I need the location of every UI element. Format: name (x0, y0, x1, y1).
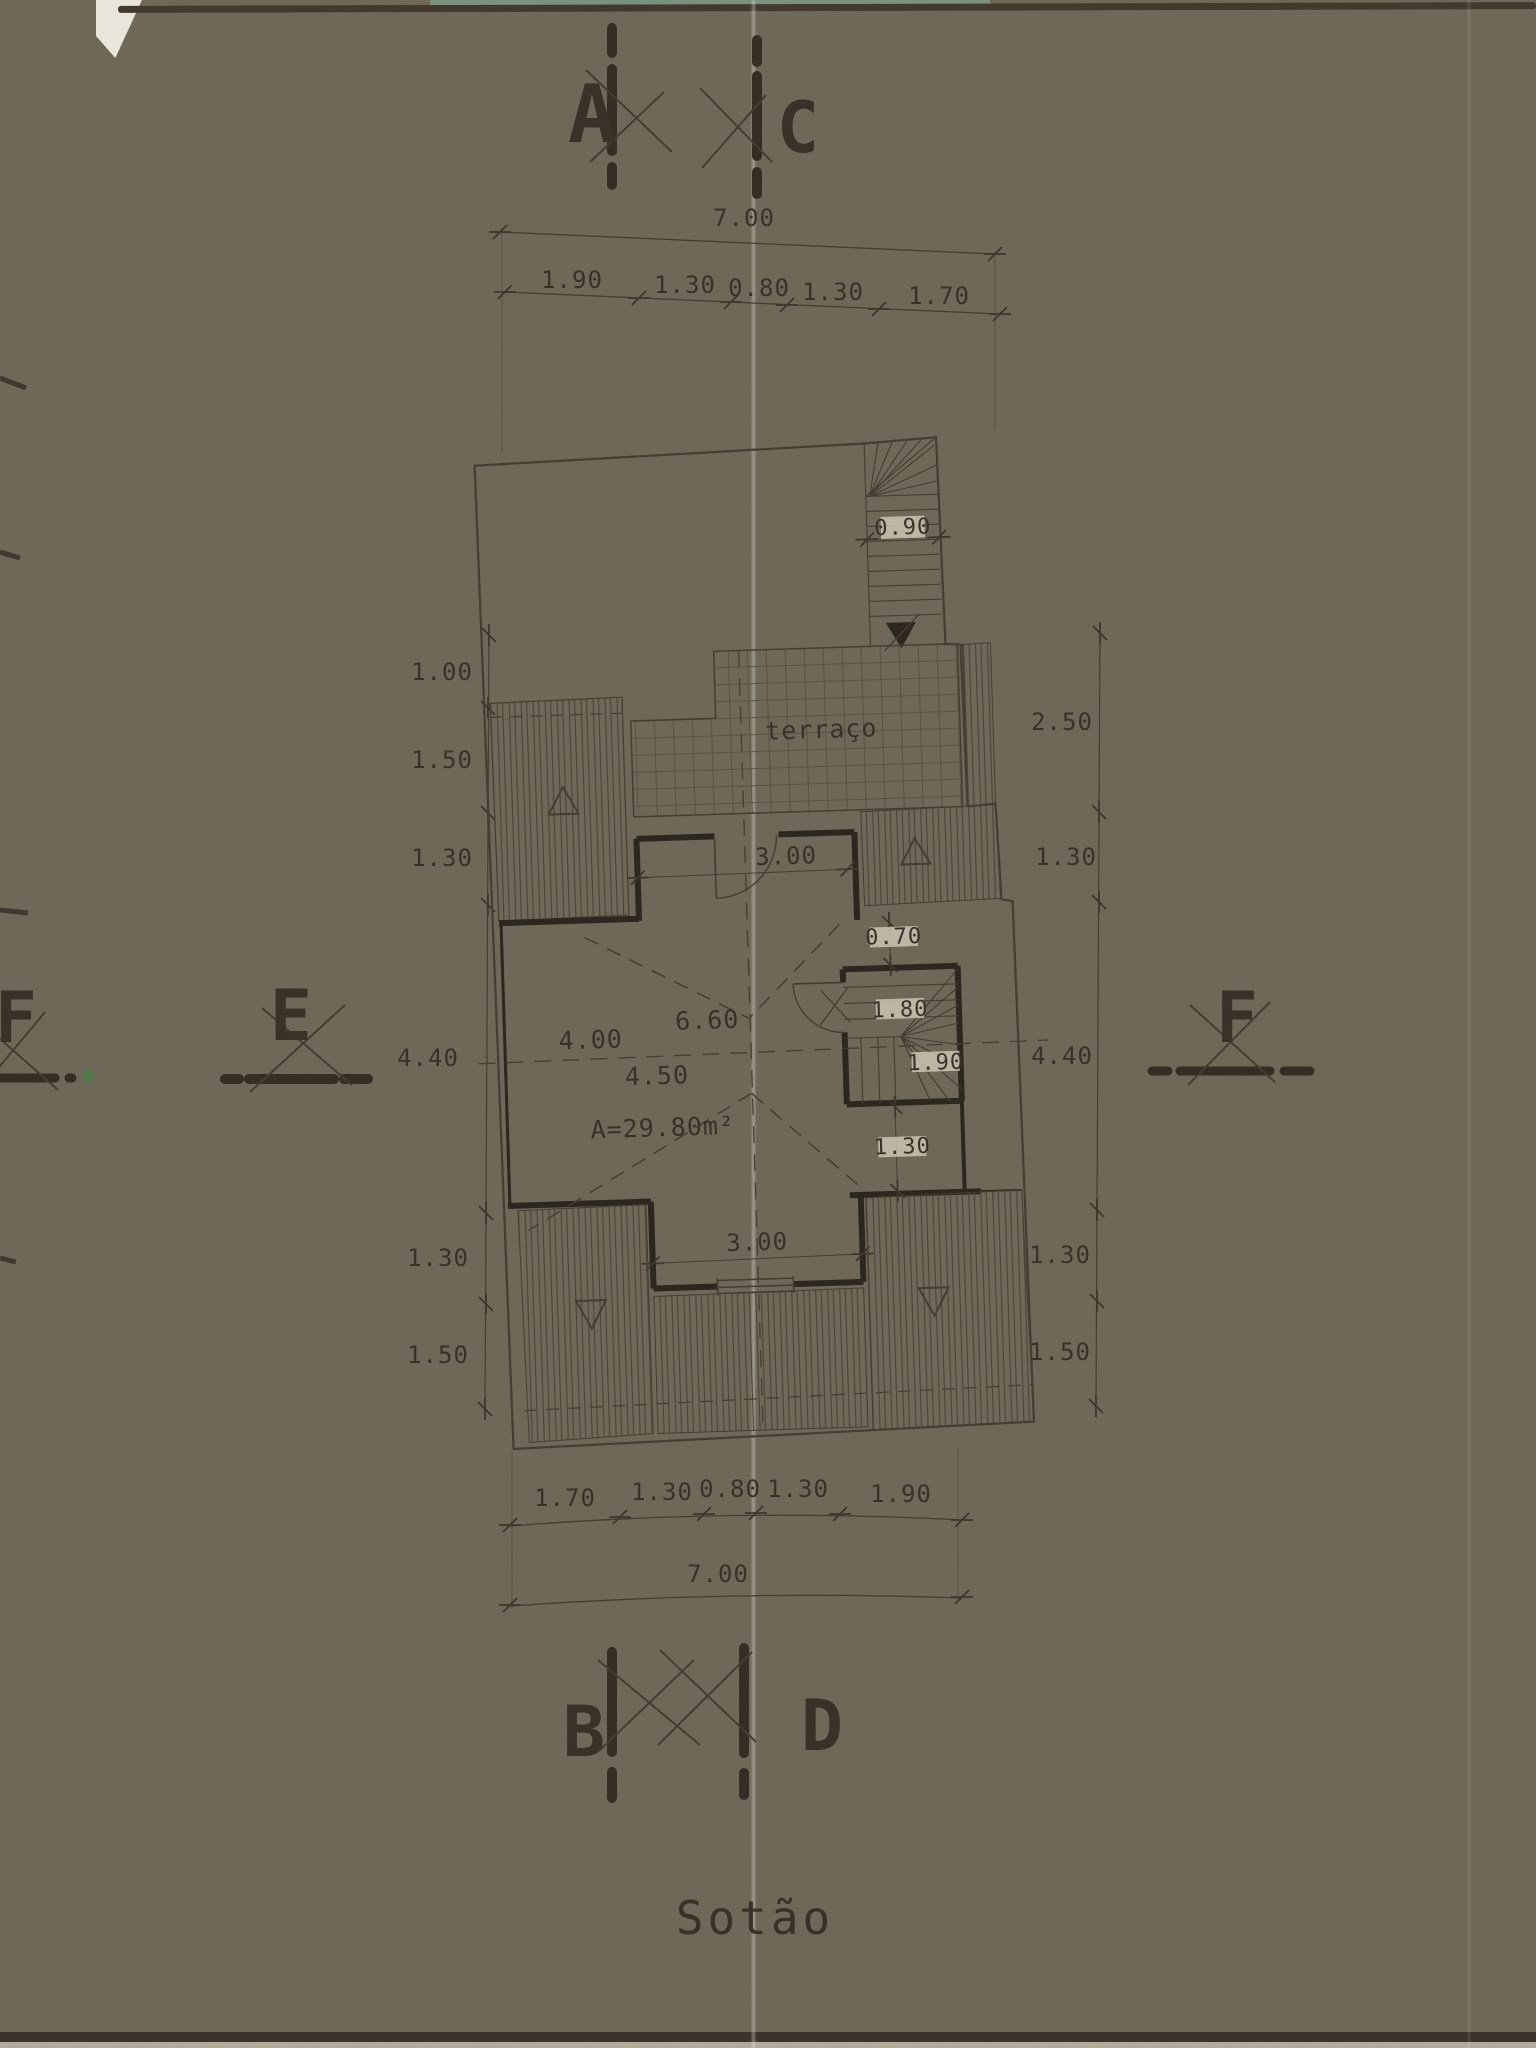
section-marker-b: B (563, 1652, 700, 1800)
dim-room-center: 4.50 (624, 1060, 689, 1091)
photographed-blueprint-page: A C B D E F F (0, 0, 1536, 2048)
marker-a-label: A (568, 68, 616, 161)
roof-hatch-upper-left (490, 697, 629, 921)
dim-top-seg-3: 0.80 (728, 274, 790, 302)
dim-bottom-seg-3: 0.80 (699, 1475, 761, 1503)
inner-stair: 1.80 1.90 (793, 969, 966, 1106)
dim-stair-b: 1.90 (907, 1050, 965, 1077)
dim-left-chain: 1.00 1.50 1.30 4.40 1.30 1.50 (397, 624, 496, 1420)
marker-f-right-label: F (1216, 977, 1258, 1059)
dim-top-seg-2: 1.30 (654, 271, 716, 299)
dim-bottom: 1.70 1.30 0.80 1.30 1.90 7.00 (499, 1448, 973, 1612)
section-marker-f-right: F (1152, 977, 1318, 1085)
section-marker-e: E (225, 975, 368, 1092)
terrace-label: terraço (765, 713, 878, 746)
room-area-label: A=29.80m² (590, 1111, 735, 1145)
marker-e-label: E (270, 975, 312, 1057)
dim-room-left: 4.00 (558, 1024, 623, 1055)
dim-right-3: 4.40 (1031, 1042, 1093, 1070)
adjacent-page-marks (0, 378, 28, 1262)
dim-left-1: 1.00 (411, 658, 473, 686)
dim-bottom-seg-2: 1.30 (631, 1478, 693, 1506)
marker-c-label: C (777, 87, 819, 169)
terrace: terraço (629, 644, 963, 817)
dim-right-1: 2.50 (1031, 708, 1093, 736)
dim-bottom-seg-4: 1.30 (767, 1475, 829, 1503)
drawing-title: Sotão (676, 1891, 834, 1945)
marker-f-left-label: F (0, 977, 37, 1059)
dim-right-chain: 2.50 1.30 4.40 1.30 1.50 (1029, 622, 1107, 1417)
upper-stair: 0.90 (852, 437, 955, 652)
dim-bottom-total: 7.00 (687, 1560, 749, 1588)
dim-left-3: 1.30 (411, 844, 473, 872)
section-marker-d: D (658, 1648, 843, 1795)
dim-bottom-seg-5: 1.90 (870, 1480, 932, 1508)
dim-stair-width: 0.90 (874, 514, 932, 541)
marker-d-label: D (801, 1685, 843, 1767)
dim-right-2: 1.30 (1035, 843, 1097, 871)
dim-landing: 1.30 (872, 1095, 932, 1203)
section-marker-f-left: F (0, 977, 72, 1090)
dim-landing-label: 1.30 (873, 1134, 931, 1161)
plan: 0.90 terraço (459, 434, 1060, 1449)
dim-upper-door: 3.00 (626, 840, 859, 885)
dim-top-total: 7.00 (713, 204, 775, 232)
dim-stair-a: 1.80 (871, 997, 929, 1024)
dim-top-seg-4: 1.30 (802, 278, 864, 306)
section-marker-a: A (568, 28, 672, 185)
dim-niche-label: 0.70 (865, 924, 923, 951)
dim-top: 7.00 1.90 1.30 0.80 1.30 1.70 (489, 204, 1011, 452)
room-labels: 6.60 4.00 4.50 A=29.80m² (558, 1005, 743, 1146)
marker-b-label: B (563, 1691, 605, 1773)
dim-upper-door-label: 3.00 (755, 841, 818, 871)
section-marker-c: C (700, 40, 819, 195)
dim-room-width: 6.60 (675, 1005, 740, 1036)
dim-top-seg-5: 1.70 (908, 282, 970, 310)
floor-plan-drawing: A C B D E F F (0, 0, 1536, 2048)
dim-left-6: 1.50 (407, 1341, 469, 1369)
dim-top-seg-1: 1.90 (541, 266, 603, 294)
dim-left-5: 1.30 (407, 1244, 469, 1272)
dim-bottom-seg-1: 1.70 (534, 1484, 596, 1512)
dim-right-5: 1.50 (1029, 1338, 1091, 1366)
dim-left-2: 1.50 (411, 746, 473, 774)
dim-right-4: 1.30 (1029, 1241, 1091, 1269)
dim-left-4: 4.40 (397, 1044, 459, 1072)
